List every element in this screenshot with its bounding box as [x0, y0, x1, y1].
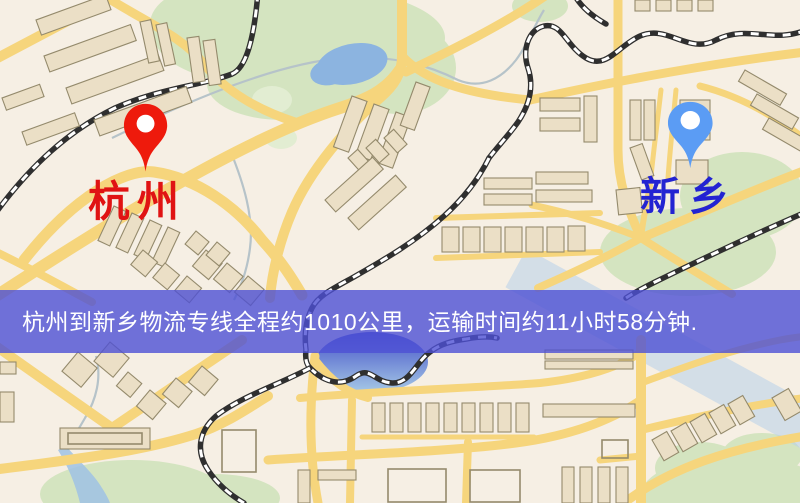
map-artwork	[0, 0, 800, 503]
origin-city-label: 杭州	[88, 182, 186, 224]
route-summary-banner: 杭州到新乡物流专线全程约1010公里，运输时间约11小时58分钟.	[0, 290, 800, 353]
destination-city-label: 新乡	[640, 177, 738, 217]
map-screenshot: 杭州 新乡 杭州到新乡物流专线全程约1010公里，运输时间约11小时58分钟.	[0, 0, 800, 503]
route-summary-text: 杭州到新乡物流专线全程约1010公里，运输时间约11小时58分钟.	[22, 303, 698, 337]
